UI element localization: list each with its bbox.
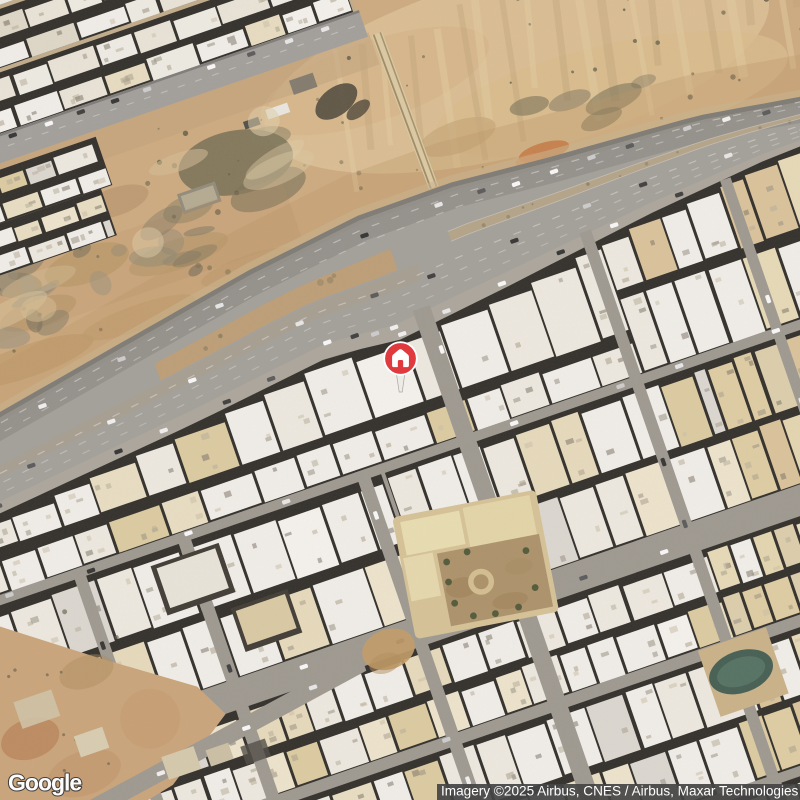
svg-text:Imagery ©2025 Airbus, CNES / A: Imagery ©2025 Airbus, CNES / Airbus, Max… xyxy=(441,784,799,799)
svg-text:Google: Google xyxy=(8,770,81,796)
